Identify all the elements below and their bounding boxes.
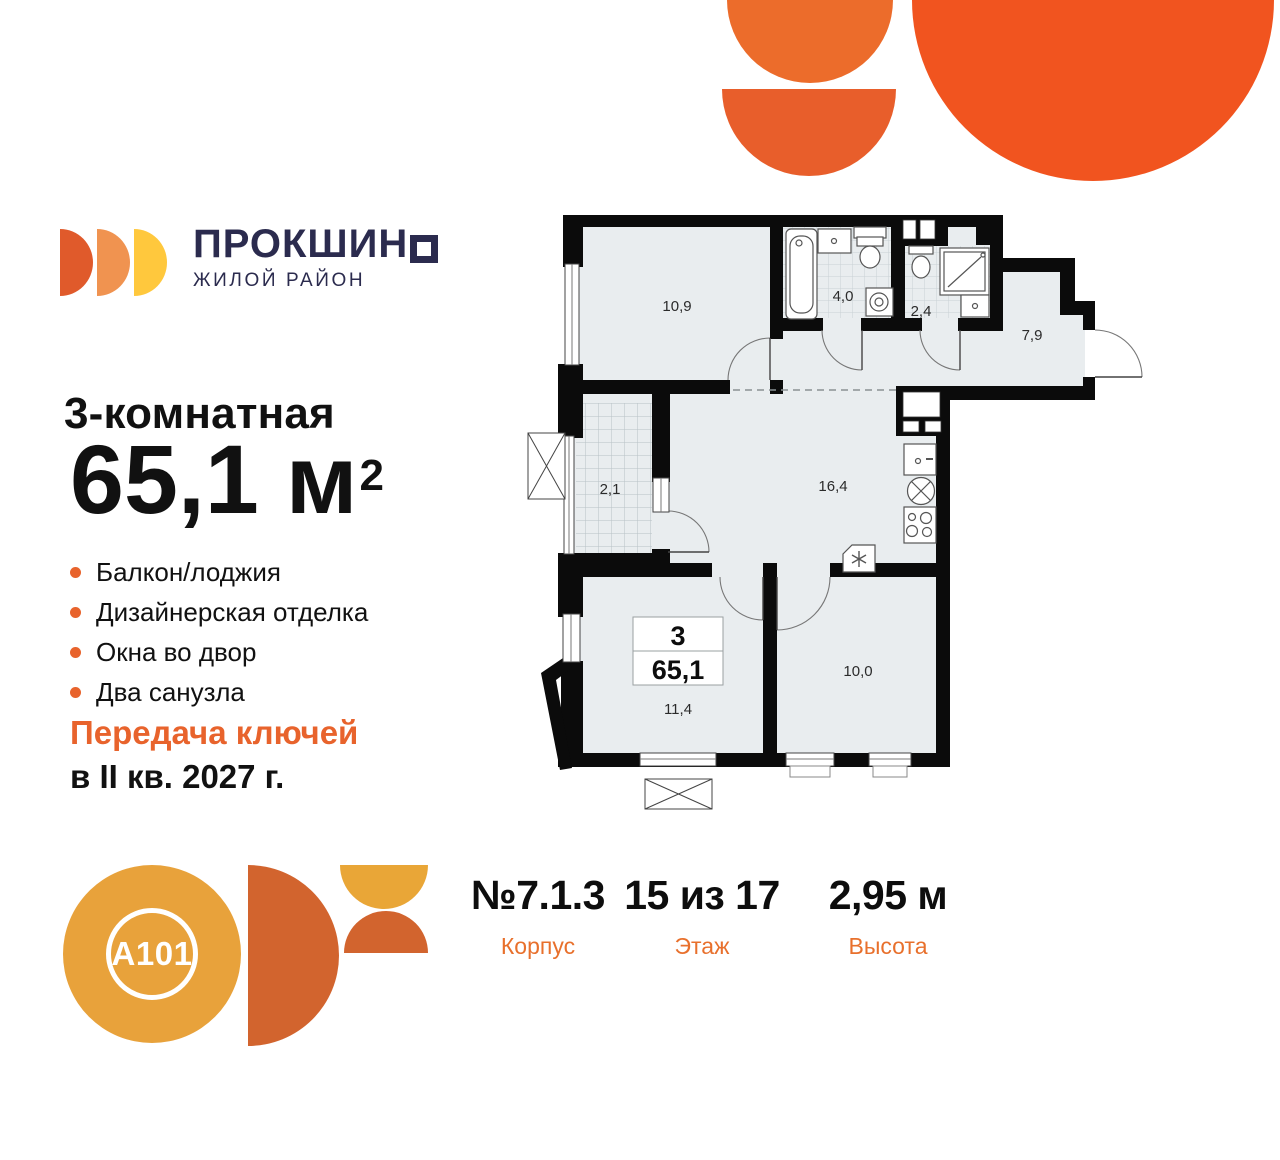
- feature-list: Балкон/лоджия Дизайнерская отделка Окна …: [70, 552, 368, 712]
- room-label-room-right: 10,0: [843, 663, 872, 680]
- handover-line-1: Передача ключей: [70, 714, 358, 752]
- hob-icon: [908, 478, 935, 505]
- stat-height-label: Высота: [778, 933, 998, 960]
- room-label-balcony: 2,1: [600, 481, 621, 498]
- developer-logo-ring: A101: [106, 908, 198, 1000]
- room-label-hallway: 7,9: [1022, 327, 1043, 344]
- brand-tagline: ЖИЛОЙ РАЙОН: [193, 270, 438, 292]
- developer-logo-halfdisc: [248, 865, 339, 1046]
- developer-logo: A101: [63, 865, 241, 1043]
- washing-machine-icon: [866, 288, 893, 316]
- stat-height: 2,95 м Высота: [778, 872, 998, 960]
- bullet-dot-icon: [70, 647, 81, 658]
- plan-info-box: 3 65,1: [633, 617, 723, 685]
- shelf-icon: [854, 227, 886, 238]
- logo-petal-icon: [134, 229, 167, 296]
- room-label-bathroom-small: 2,4: [911, 303, 932, 320]
- feature-item: Окна во двор: [70, 632, 368, 672]
- decor-semicircle-large: [912, 0, 1274, 181]
- developer-logo-yellow-shape: [340, 865, 428, 909]
- bullet-dot-icon: [70, 687, 81, 698]
- brand-logo: ПРОКШИНО ЖИЛОЙ РАЙОН: [60, 229, 438, 296]
- info-box-area: 65,1: [652, 655, 705, 685]
- fridge-icon: [843, 545, 875, 572]
- info-box-rooms: 3: [670, 621, 685, 651]
- floor-plan: 3 65,1 10,9 4,0 2,4 7,9 2,1 16,4 11,4 10…: [510, 200, 1200, 850]
- feature-item: Дизайнерская отделка: [70, 592, 368, 632]
- area-superscript: 2: [360, 451, 384, 500]
- stove-icon: [904, 507, 936, 543]
- handover-line-2: в II кв. 2027 г.: [70, 758, 284, 796]
- bullet-dot-icon: [70, 607, 81, 618]
- decor-semicircle-small-bottom: [722, 89, 896, 176]
- feature-label: Два санузла: [96, 677, 245, 707]
- brand-text-block: ПРОКШИНО ЖИЛОЙ РАЙОН: [193, 229, 438, 292]
- shower-icon: [940, 248, 989, 295]
- room-label-bedroom: 10,9: [662, 298, 691, 315]
- area-value: 65,1 м2: [70, 430, 384, 530]
- decor-semicircle-small-top: [727, 0, 893, 83]
- stat-height-value: 2,95 м: [778, 872, 998, 919]
- sink-icon: [961, 295, 989, 317]
- feature-label: Окна во двор: [96, 637, 256, 667]
- logo-petal-icon: [97, 229, 130, 296]
- room-label-kitchen-living: 16,4: [818, 478, 847, 495]
- developer-logo-orange-shape: [344, 911, 428, 953]
- bullet-dot-icon: [70, 567, 81, 578]
- listing-card: { "brand": { "wordmark": "ПРОКШИНО", "wo…: [0, 0, 1280, 1160]
- logo-petal-icon: [60, 229, 93, 296]
- developer-logo-text: A101: [112, 935, 193, 973]
- feature-label: Балкон/лоджия: [96, 557, 281, 587]
- brand-wordmark: ПРОКШИНО: [193, 229, 438, 263]
- brand-square-o: О: [410, 235, 438, 263]
- room-label-bathroom-big: 4,0: [833, 288, 854, 305]
- kitchen-sink-icon: [904, 444, 936, 475]
- bathtub-icon: [786, 229, 817, 319]
- feature-label: Дизайнерская отделка: [96, 597, 368, 627]
- area-number: 65,1 м: [70, 425, 358, 534]
- room-label-room-left: 11,4: [664, 701, 692, 718]
- brand-wordmark-text: ПРОКШИН: [193, 222, 408, 266]
- feature-item: Балкон/лоджия: [70, 552, 368, 592]
- sink-icon: [818, 229, 851, 253]
- feature-item: Два санузла: [70, 672, 368, 712]
